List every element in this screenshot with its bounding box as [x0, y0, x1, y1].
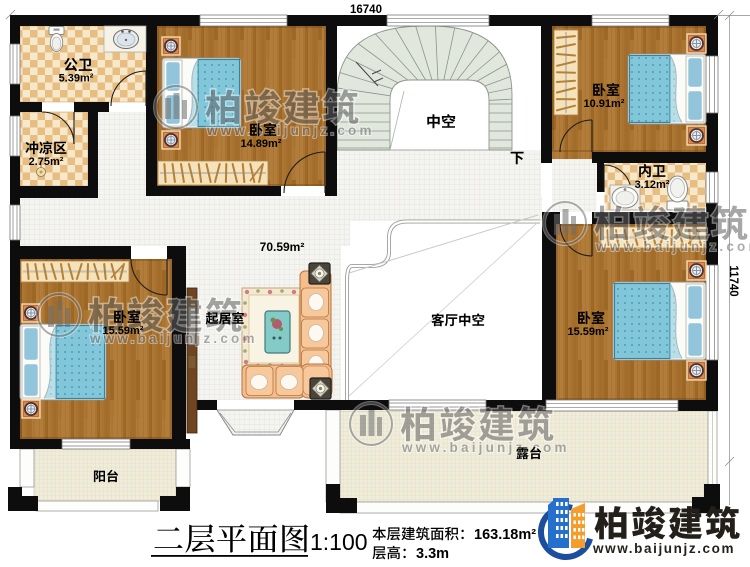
svg-text:70.59m²: 70.59m²: [260, 240, 305, 254]
svg-text:15.59m²: 15.59m²: [103, 325, 144, 337]
svg-text:2.75m²: 2.75m²: [29, 156, 64, 168]
svg-text:11740: 11740: [727, 265, 739, 296]
svg-text:10.91m²: 10.91m²: [584, 98, 625, 110]
svg-text:14.89m²: 14.89m²: [241, 138, 282, 150]
svg-text:15.59m²: 15.59m²: [568, 326, 609, 338]
svg-text:www.baijunjz.com: www.baijunjz.com: [592, 541, 735, 556]
svg-text:3.12m²: 3.12m²: [635, 179, 670, 191]
svg-text:163.18m²: 163.18m²: [474, 527, 536, 543]
svg-text:1:100: 1:100: [310, 529, 368, 555]
svg-text:5.39m²: 5.39m²: [59, 73, 94, 85]
svg-text:16740: 16740: [350, 4, 382, 16]
svg-text:3.3m: 3.3m: [416, 546, 449, 562]
